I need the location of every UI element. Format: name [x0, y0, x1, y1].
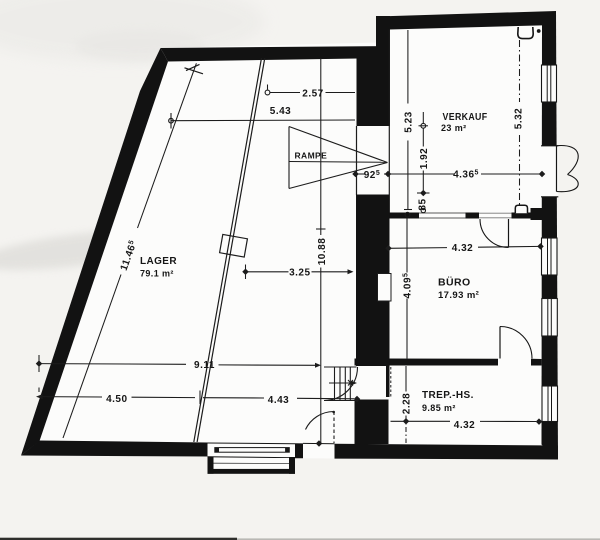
svg-text:85: 85	[418, 198, 429, 210]
svg-text:4.50: 4.50	[106, 394, 127, 405]
svg-text:5.23: 5.23	[404, 111, 415, 132]
svg-text:5.32: 5.32	[514, 108, 525, 129]
svg-text:VERKAUF: VERKAUF	[443, 112, 488, 123]
svg-text:3.25: 3.25	[289, 268, 310, 279]
svg-text:10.88: 10.88	[317, 238, 328, 266]
svg-text:TREP.-HS.: TREP.-HS.	[422, 390, 474, 401]
svg-text:BÜRO: BÜRO	[438, 276, 471, 289]
svg-text:2.28: 2.28	[402, 393, 413, 414]
svg-text:4.43: 4.43	[268, 395, 289, 406]
svg-text:9.11: 9.11	[194, 360, 215, 371]
svg-text:23 m²: 23 m²	[441, 123, 467, 133]
svg-text:17.93 m²: 17.93 m²	[438, 290, 479, 301]
svg-text:4.32: 4.32	[454, 420, 475, 431]
svg-text:RAMPE: RAMPE	[295, 151, 328, 161]
svg-text:LAGER: LAGER	[140, 256, 177, 267]
svg-text:5.43: 5.43	[270, 106, 291, 117]
svg-text:1.92: 1.92	[419, 148, 430, 169]
svg-text:9.85 m²: 9.85 m²	[422, 403, 456, 413]
svg-text:79.1 m²: 79.1 m²	[140, 269, 174, 279]
svg-text:4.32: 4.32	[452, 243, 473, 254]
